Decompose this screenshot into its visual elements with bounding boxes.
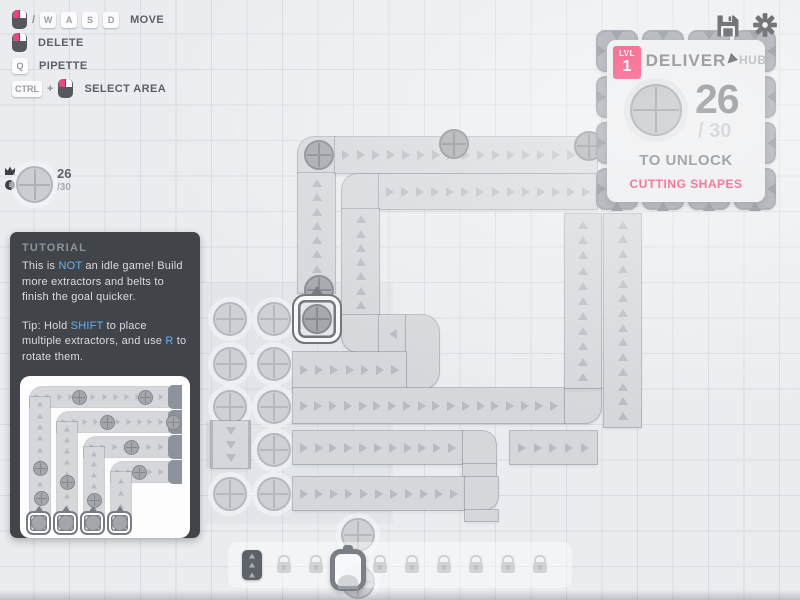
belt-arrow (518, 443, 526, 453)
toolbar-slot-belt[interactable] (238, 542, 265, 588)
circle-deposit (257, 477, 291, 511)
belt-arrow (91, 462, 97, 467)
belt-arrow (403, 401, 411, 411)
conveyor-belt[interactable] (293, 388, 565, 423)
settings-button[interactable] (752, 12, 778, 43)
circle-shape-item (138, 390, 153, 405)
belt-arrow (158, 394, 163, 400)
circle-deposit (257, 347, 291, 381)
belt-arrow (158, 444, 163, 450)
circle-deposit (213, 302, 247, 336)
belt-arrow (552, 187, 560, 197)
belt-arrow (567, 150, 575, 160)
save-button[interactable] (714, 12, 742, 45)
pipette-label: PIPETTE (39, 60, 88, 72)
toolbar-slot-lock[interactable] (462, 542, 489, 588)
belt-arrow (522, 150, 530, 160)
belt-arrow (578, 282, 588, 290)
belt-arrow (521, 401, 529, 411)
circle-shape-item (439, 129, 469, 159)
lock-icon (277, 562, 291, 573)
belt-arrow (431, 187, 439, 197)
circle-deposit (257, 302, 291, 336)
belt-arrow (581, 443, 589, 453)
belt-arrow (618, 265, 628, 273)
belt-arrow (124, 394, 129, 400)
belt-arrow (64, 427, 70, 432)
save-icon (714, 12, 742, 40)
belt-arrow (226, 441, 236, 449)
belt-arrow (315, 443, 323, 453)
tutorial-tip: Tip: Hold SHIFT to place multiple extrac… (22, 319, 188, 366)
circle-shape-item (304, 140, 334, 170)
belt-arrow (356, 244, 366, 252)
belt-arrow (618, 397, 628, 405)
belt-arrow (226, 454, 236, 462)
belt-arrow (64, 460, 70, 465)
conveyor-belt[interactable] (379, 174, 597, 209)
circle-shape-item (87, 493, 102, 508)
belt-arrow (552, 150, 560, 160)
belt-arrow (578, 342, 588, 350)
belt-arrow (389, 443, 397, 453)
belt-arrow (448, 443, 456, 453)
conveyor-belt[interactable] (604, 214, 641, 427)
belt-arrow (356, 287, 366, 295)
belt-arrow (342, 150, 350, 160)
belt-arrow (567, 187, 575, 197)
reward-text: CUTTING SHAPES (607, 177, 765, 191)
belt-arrow (618, 294, 628, 302)
belt-arrow (94, 419, 99, 425)
belt-arrow (376, 365, 384, 375)
tutorial-text: Tip: Hold (22, 320, 71, 332)
hub-input-arrow (767, 91, 776, 103)
crown-icon (4, 166, 16, 175)
belt-arrow (345, 489, 353, 499)
conveyor-belt-corner[interactable] (463, 431, 496, 464)
belt-tool-icon (242, 550, 262, 580)
conveyor-belt-corner[interactable] (342, 315, 379, 352)
belt-arrow (492, 150, 500, 160)
select-area-label: SELECT AREA (84, 83, 166, 95)
lock-icon (405, 562, 419, 573)
belt-arrow (404, 443, 412, 453)
mouse-icon (58, 79, 73, 98)
belt-arrow (159, 419, 164, 425)
circle-deposit (257, 390, 291, 424)
belt-arrow (461, 187, 469, 197)
belt-arrow (535, 401, 543, 411)
belt-arrow (344, 401, 352, 411)
conveyor-belt[interactable] (565, 214, 601, 388)
belt-arrow (137, 419, 142, 425)
belt-arrow (126, 419, 131, 425)
belt-arrow (387, 150, 395, 160)
belt-arrow (618, 280, 628, 288)
keybind-hints: / W A S D MOVE DELETE Q PIPETTE CTRL + S… (12, 10, 166, 102)
belt-arrow (373, 401, 381, 411)
tutorial-extractor (53, 511, 78, 535)
delete-label: DELETE (38, 37, 84, 49)
belt-arrow (477, 150, 485, 160)
toolbar-slot-extractor[interactable] (334, 542, 361, 588)
extractor-tool-icon-selected (330, 549, 366, 591)
belt-arrow (91, 483, 97, 488)
unlock-text: TO UNLOCK (607, 152, 765, 169)
belt-arrow (462, 401, 470, 411)
belt-arrow (118, 491, 124, 496)
belt-arrow (618, 353, 628, 361)
belt-arrow (356, 230, 366, 238)
belt-arrow (537, 187, 545, 197)
lock-icon (501, 562, 515, 573)
conveyor-belt[interactable] (379, 315, 406, 352)
belt-arrow (618, 324, 628, 332)
belt-arrow (388, 401, 396, 411)
keybind-pipette: Q PIPETTE (12, 56, 166, 75)
hub-input-arrow (657, 202, 669, 211)
belt-arrow (248, 553, 254, 558)
tutorial-extractor (80, 511, 105, 535)
conveyor-belt[interactable] (342, 209, 379, 315)
belt-arrow (312, 179, 322, 187)
belt-arrow (418, 443, 426, 453)
hub-input-arrow (597, 45, 606, 57)
slash-separator: / (32, 14, 35, 26)
circle-deposit (213, 347, 247, 381)
belt-arrow (447, 401, 455, 411)
belt-arrow (37, 481, 43, 486)
belt-arrow (435, 489, 443, 499)
tutorial-highlight: R (165, 335, 173, 347)
belt-arrow (402, 150, 410, 160)
toolbar-slot-lock[interactable] (302, 542, 329, 588)
keybind-delete: DELETE (12, 33, 166, 52)
belt-arrow (312, 236, 322, 244)
belt-arrow (578, 221, 588, 229)
belt-arrow (330, 365, 338, 375)
belt-arrow (37, 425, 43, 430)
keybind-select-area: CTRL + SELECT AREA (12, 79, 166, 98)
belt-arrow (618, 221, 628, 229)
belt-arrow (300, 365, 308, 375)
circle-shape-item (166, 415, 181, 430)
cursor-icon (724, 53, 738, 67)
belt-arrow (148, 419, 153, 425)
belt-arrow (300, 443, 308, 453)
conveyor-belt-corner[interactable] (565, 388, 601, 423)
belt-arrow (549, 443, 557, 453)
toolbar-slot-lock[interactable] (366, 542, 393, 588)
belt-arrow (618, 368, 628, 376)
hub-input-arrow (767, 137, 776, 149)
extractor-building-selected[interactable] (292, 294, 342, 344)
hub-input-arrow (597, 137, 606, 149)
tutorial-hub-edge (168, 385, 182, 409)
belt-arrow (537, 150, 545, 160)
belt-arrow (578, 297, 588, 305)
belt-arrow (446, 187, 454, 197)
pinned-total: /30 (57, 182, 71, 193)
conveyor-belt[interactable] (293, 477, 465, 510)
belt-arrow (91, 473, 97, 478)
belt-arrow (476, 187, 484, 197)
belt-arrow (357, 150, 365, 160)
conveyor-belt-corner[interactable] (465, 477, 498, 510)
circle-deposit (213, 390, 247, 424)
belt-arrow (360, 489, 368, 499)
belt-arrow (147, 444, 152, 450)
key-a: A (61, 12, 77, 28)
belt-arrow (374, 443, 382, 453)
belt-arrow (491, 401, 499, 411)
circle-shape-item (124, 440, 139, 455)
mouse-icon (12, 10, 27, 29)
tutorial-extractor (26, 511, 51, 535)
belt-arrow (248, 572, 254, 577)
belt-arrow (248, 563, 254, 568)
belt-arrow (432, 150, 440, 160)
belt-arrow (330, 489, 338, 499)
belt-arrow (57, 394, 62, 400)
belt-arrow (618, 309, 628, 317)
belt-arrow (565, 443, 573, 453)
circle-shape-item (302, 304, 332, 334)
belt-arrow (102, 394, 107, 400)
goal-total: / 30 (698, 120, 731, 143)
belt-arrow (432, 401, 440, 411)
belt-arrow (329, 443, 337, 453)
belt-arrow (64, 493, 70, 498)
belt-arrow (420, 489, 428, 499)
belt-arrow (405, 489, 413, 499)
belt-arrow (315, 489, 323, 499)
game-screen: LVL 1 DELIVER 26 / 30 TO UNLOCK CUTTING … (0, 0, 800, 600)
lock-icon (309, 562, 323, 573)
belt-arrow (618, 412, 628, 420)
circle-shape-item (60, 475, 75, 490)
belt-arrow (112, 444, 117, 450)
conveyor-belt[interactable] (510, 431, 597, 464)
tutorial-heading: TUTORIAL (22, 242, 188, 254)
belt-arrow (315, 365, 323, 375)
key-s: S (82, 12, 98, 28)
belt-arrow (618, 338, 628, 346)
tutorial-belt (57, 422, 77, 514)
belt-arrow (37, 436, 43, 441)
hub-input-arrow (703, 202, 715, 211)
belt-arrow (312, 265, 322, 273)
belt-arrow (312, 222, 322, 230)
plus-separator: + (47, 83, 53, 95)
conveyor-belt-stub[interactable] (465, 510, 498, 521)
belt-arrow (226, 427, 236, 435)
circle-shape-item (100, 415, 115, 430)
toolbar-slot-lock[interactable] (270, 542, 297, 588)
circle-shape-item (34, 491, 49, 506)
key-ctrl: CTRL (12, 81, 42, 97)
conveyor-belt[interactable] (293, 352, 406, 388)
hub-input-arrow (657, 31, 669, 40)
belt-arrow (372, 150, 380, 160)
circle-shape-item (33, 461, 48, 476)
belt-arrow (386, 187, 394, 197)
belt-arrow (578, 373, 588, 381)
hub-input-arrow (611, 202, 623, 211)
lock-icon (373, 562, 387, 573)
belt-arrow (356, 215, 366, 223)
belt-arrow (618, 250, 628, 258)
belt-arrow (417, 150, 425, 160)
belt-arrow (344, 443, 352, 453)
tutorial-text: This is (22, 260, 58, 272)
belt-arrow (300, 489, 308, 499)
belt-arrow (356, 272, 366, 280)
conveyor-belt[interactable] (211, 421, 250, 468)
circle-deposit (213, 477, 247, 511)
belt-arrow (401, 187, 409, 197)
hub-label: HUB (726, 53, 767, 67)
belt-arrow (550, 401, 558, 411)
belt-arrow (391, 365, 399, 375)
key-d: D (103, 12, 119, 28)
delivered-count: 26 (695, 76, 739, 123)
key-q: Q (12, 58, 28, 74)
belt-arrow (312, 250, 322, 258)
belt-arrow (159, 469, 164, 475)
tutorial-highlight: SHIFT (71, 320, 104, 332)
belt-arrow (37, 447, 43, 452)
belt-arrow (359, 401, 367, 411)
belt-arrow (356, 301, 366, 309)
belt-arrow (578, 251, 588, 259)
hub-input-arrow (767, 183, 776, 195)
belt-arrow (450, 489, 458, 499)
hub-input-arrow (597, 91, 606, 103)
belt-arrow (534, 443, 542, 453)
belt-arrow (618, 383, 628, 391)
circle-deposit (257, 433, 291, 467)
belt-arrow (312, 208, 322, 216)
belt-arrow (507, 150, 515, 160)
circle-shape-item (72, 390, 87, 405)
belt-arrow (37, 402, 43, 407)
belt-arrow (329, 401, 337, 411)
move-label: MOVE (130, 14, 164, 26)
belt-arrow (416, 187, 424, 197)
gear-icon (752, 12, 778, 38)
belt-arrow (578, 327, 588, 335)
belt-arrow (522, 187, 530, 197)
belt-arrow (389, 329, 397, 339)
belt-arrow (37, 413, 43, 418)
conveyor-belt-corner[interactable] (342, 174, 379, 209)
belt-arrow (506, 401, 514, 411)
goal-shape-icon (630, 84, 682, 136)
tutorial-panel: TUTORIAL This is NOT an idle game! Build… (10, 232, 200, 538)
mouse-icon (12, 33, 27, 52)
lock-icon (469, 562, 483, 573)
key-w: W (40, 12, 56, 28)
belt-arrow (578, 312, 588, 320)
tutorial-highlight: NOT (58, 260, 82, 272)
belt-arrow (582, 187, 590, 197)
belt-arrow (492, 187, 500, 197)
pinned-count: 26 (57, 166, 71, 181)
circle-shape-item (132, 465, 147, 480)
belt-arrow (375, 489, 383, 499)
tutorial-illustration (20, 376, 190, 538)
conveyor-belt[interactable] (293, 431, 463, 464)
belt-arrow (113, 394, 118, 400)
hub-input-arrow (597, 183, 606, 195)
belt-arrow (118, 478, 124, 483)
belt-arrow (300, 401, 308, 411)
conveyor-belt-stub[interactable] (463, 464, 496, 477)
tutorial-paragraph: This is NOT an idle game! Build more ext… (22, 259, 188, 306)
belt-arrow (507, 187, 515, 197)
lock-icon (533, 562, 547, 573)
belt-arrow (356, 258, 366, 266)
tutorial-extractor (107, 511, 132, 535)
belt-arrow (312, 193, 322, 201)
hub-input-arrow (749, 202, 761, 211)
belt-arrow (578, 358, 588, 366)
belt-arrow (578, 267, 588, 275)
building-toolbar[interactable] (228, 542, 572, 588)
toolbar-slot-lock[interactable] (430, 542, 457, 588)
tutorial-hub-edge (168, 435, 182, 459)
belt-arrow (578, 236, 588, 244)
belt-arrow (390, 489, 398, 499)
belt-arrow (618, 235, 628, 243)
hub-name: HUB (739, 53, 767, 67)
belt-arrow (148, 469, 153, 475)
hub-input-arrow (767, 45, 776, 57)
keybind-move: / W A S D MOVE (12, 10, 166, 29)
hub-input-arrow (611, 31, 623, 40)
belt-arrow (433, 443, 441, 453)
lock-icon (437, 562, 451, 573)
belt-arrow (361, 365, 369, 375)
belt-arrow (477, 401, 485, 411)
belt-arrow (346, 365, 354, 375)
belt-arrow (91, 394, 96, 400)
toolbar-slot-lock[interactable] (526, 542, 553, 588)
belt-arrow (314, 401, 322, 411)
pinned-shape-icon (16, 166, 53, 203)
belt-arrow (83, 419, 88, 425)
info-icon (5, 180, 15, 190)
tutorial-hub-edge (168, 460, 182, 484)
toolbar-slot-lock[interactable] (398, 542, 425, 588)
toolbar-slot-lock[interactable] (494, 542, 521, 588)
conveyor-belt-uturn[interactable] (406, 315, 439, 389)
belt-arrow (64, 438, 70, 443)
belt-arrow (115, 419, 120, 425)
belt-arrow (91, 451, 97, 456)
belt-arrow (64, 449, 70, 454)
belt-arrow (418, 401, 426, 411)
belt-arrow (359, 443, 367, 453)
